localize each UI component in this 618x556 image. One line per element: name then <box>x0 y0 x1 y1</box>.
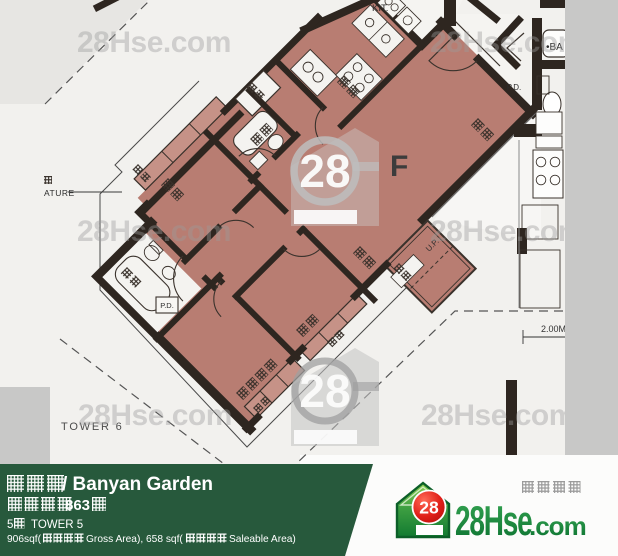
svg-text:28Hse.com: 28Hse.com <box>421 399 575 432</box>
svg-text:5: 5 <box>7 519 13 531</box>
svg-text:2.00M: 2.00M <box>541 324 566 334</box>
svg-text:906sqf(: 906sqf( <box>7 534 42 545</box>
svg-text:ATURE: ATURE <box>44 188 75 198</box>
svg-text:F: F <box>390 150 408 183</box>
svg-text:28Hse.com: 28Hse.com <box>77 26 231 59</box>
svg-text:/ Banyan Garden: / Banyan Garden <box>62 474 213 495</box>
svg-text:28Hse.com: 28Hse.com <box>78 399 232 432</box>
svg-text:28: 28 <box>299 145 350 197</box>
svg-text:863: 863 <box>65 497 90 514</box>
svg-text:28Hse.com: 28Hse.com <box>77 215 231 248</box>
svg-text:28Hse: 28Hse <box>455 499 532 545</box>
svg-text:.com: .com <box>529 511 586 541</box>
svg-text:28Hse.com: 28Hse.com <box>430 26 584 59</box>
svg-text:28Hse.com: 28Hse.com <box>430 215 584 248</box>
svg-text:KIT.: KIT. <box>372 3 388 14</box>
svg-text:Saleable Area): Saleable Area) <box>229 534 296 545</box>
svg-text:P.D.: P.D. <box>507 83 522 92</box>
svg-text:28: 28 <box>419 498 439 518</box>
svg-text:TOWER 5: TOWER 5 <box>31 519 83 531</box>
svg-text:Gross Area), 658 sqf(: Gross Area), 658 sqf( <box>86 534 183 545</box>
svg-text:28: 28 <box>299 365 350 417</box>
svg-text:P.D.: P.D. <box>160 301 174 310</box>
